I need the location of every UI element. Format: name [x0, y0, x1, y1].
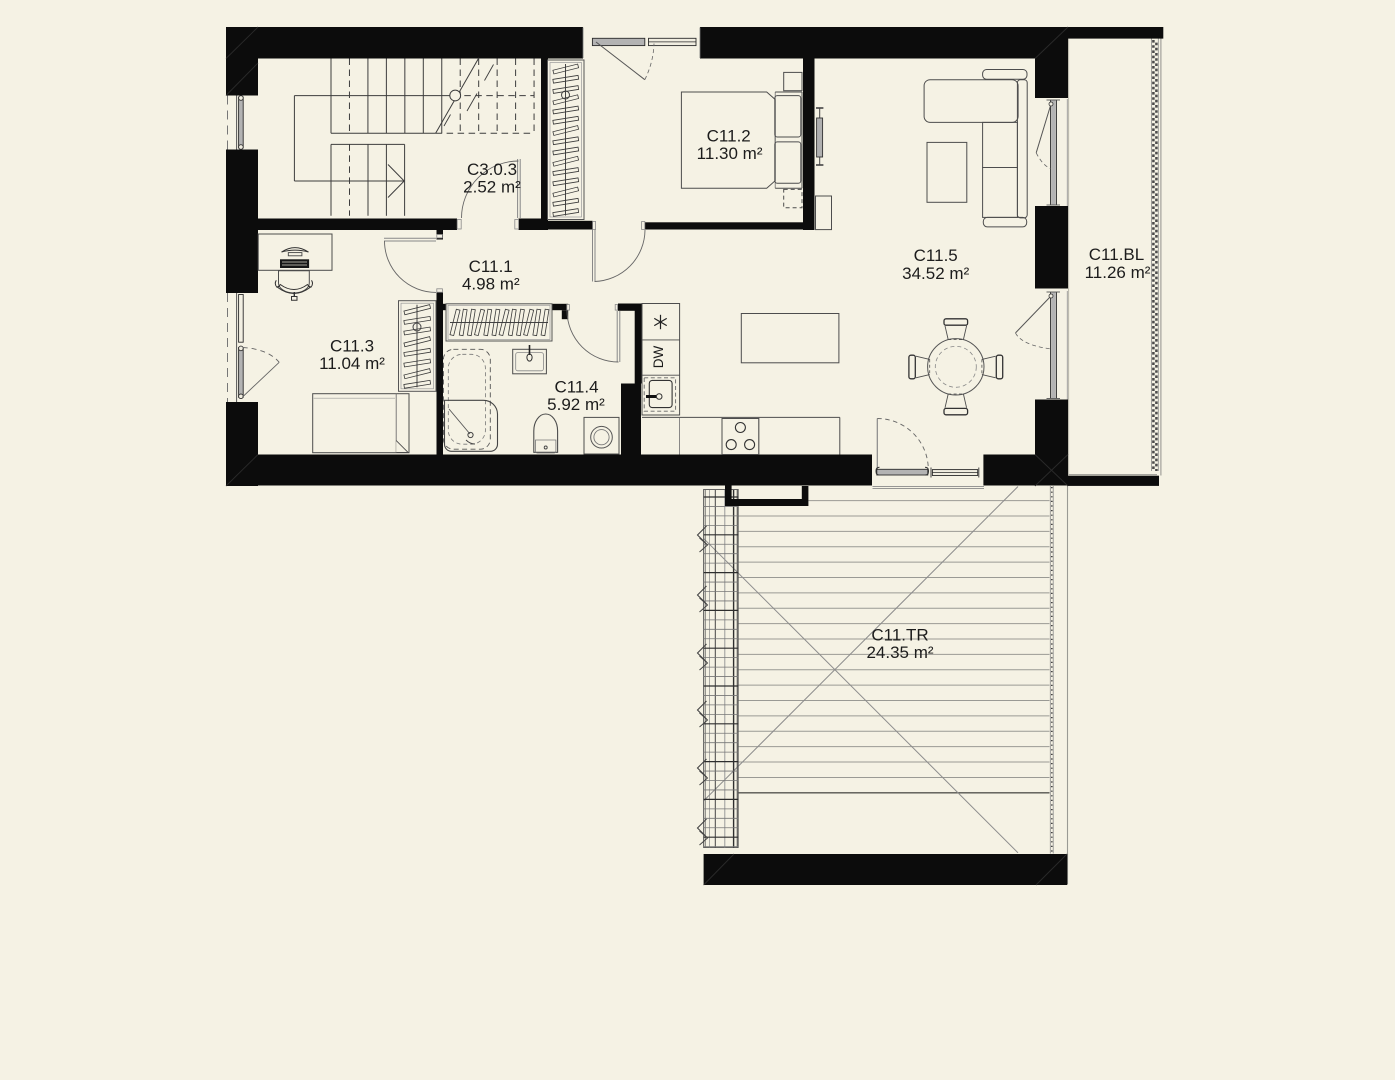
- svg-text:24.35 m²: 24.35 m²: [866, 643, 933, 662]
- svg-text:C11.3: C11.3: [330, 337, 374, 356]
- svg-text:C3.0.3: C3.0.3: [467, 160, 517, 179]
- svg-text:2.52 m²: 2.52 m²: [463, 178, 521, 197]
- svg-text:C11.TR: C11.TR: [871, 626, 928, 645]
- svg-text:4.98 m²: 4.98 m²: [462, 275, 520, 294]
- svg-text:DW: DW: [651, 346, 666, 369]
- svg-text:11.26 m²: 11.26 m²: [1085, 263, 1151, 282]
- svg-text:5.92 m²: 5.92 m²: [547, 395, 605, 414]
- svg-text:C11.1: C11.1: [469, 257, 513, 276]
- svg-text:C11.BL: C11.BL: [1089, 245, 1144, 264]
- svg-text:34.52 m²: 34.52 m²: [902, 264, 969, 283]
- svg-text:11.30 m²: 11.30 m²: [697, 144, 763, 163]
- svg-text:C11.4: C11.4: [554, 378, 598, 397]
- svg-text:11.04 m²: 11.04 m²: [319, 354, 385, 373]
- svg-text:C11.5: C11.5: [914, 246, 958, 265]
- svg-text:C11.2: C11.2: [707, 126, 751, 145]
